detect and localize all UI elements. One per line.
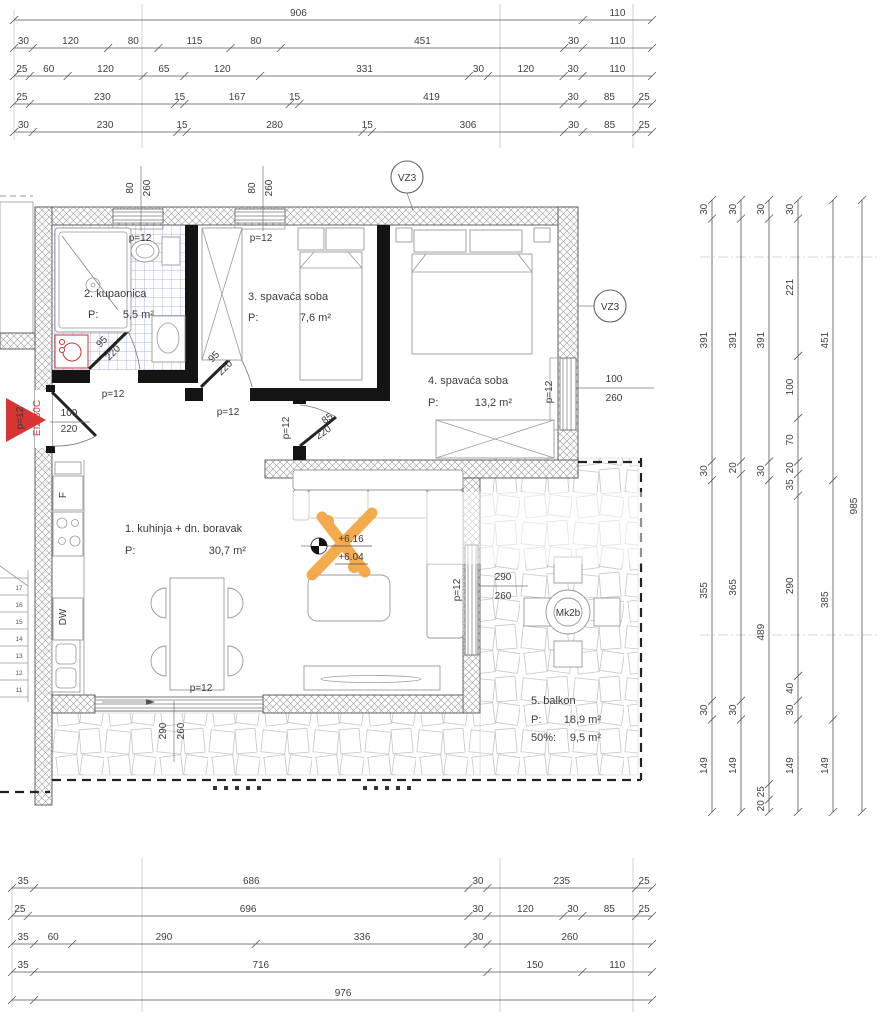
svg-text:30: 30 (18, 36, 30, 47)
plan-label: p=12 (129, 233, 152, 244)
kitchen-cabinet (55, 462, 81, 474)
svg-text:696: 696 (240, 904, 257, 915)
svg-text:P:: P: (248, 312, 258, 324)
svg-text:385: 385 (820, 591, 831, 608)
svg-text:65: 65 (158, 64, 170, 75)
railing-posts (213, 786, 411, 790)
svg-text:60: 60 (48, 932, 60, 943)
svg-text:80: 80 (250, 36, 262, 47)
dining-chair (228, 588, 243, 618)
svg-text:35: 35 (18, 960, 30, 971)
svg-text:85: 85 (604, 92, 616, 103)
bedroom4-area: 13,2 m² (475, 397, 513, 409)
wardrobe-bedroom4 (436, 420, 554, 458)
svg-text:331: 331 (356, 64, 373, 75)
balcony-area: 18,9 m² (564, 714, 602, 726)
svg-text:15: 15 (15, 619, 23, 626)
kitchen-label: 1. kuhinja + dn. boravak (125, 523, 243, 535)
svg-text:14: 14 (15, 636, 23, 643)
svg-text:30: 30 (472, 904, 484, 915)
tv-stand (304, 666, 440, 690)
fridge-letter: F (58, 492, 69, 498)
svg-text:391: 391 (728, 331, 739, 348)
stair-step-numbers: 11121314151617 (15, 585, 23, 694)
plan-label: 260 (264, 179, 275, 196)
svg-text:167: 167 (229, 92, 246, 103)
svg-text:149: 149 (785, 757, 796, 774)
sliding-door-living-bottom (95, 697, 263, 711)
svg-text:306: 306 (460, 120, 477, 131)
plan-label: p=12 (452, 578, 463, 601)
svg-text:391: 391 (699, 331, 710, 348)
svg-text:280: 280 (266, 120, 283, 131)
svg-text:35: 35 (18, 876, 30, 887)
svg-text:25: 25 (16, 64, 28, 75)
floor-plan-canvas: 11121314151617 +6.16 +6.04 VZ3 VZ3 Mk2b … (0, 0, 885, 1024)
svg-text:149: 149 (699, 757, 710, 774)
svg-text:30: 30 (699, 704, 710, 716)
svg-text:110: 110 (609, 64, 625, 75)
vz3-marker-right: VZ3 (578, 290, 626, 322)
svg-text:15: 15 (289, 92, 301, 103)
svg-text:985: 985 (849, 497, 860, 514)
svg-text:290: 290 (156, 932, 173, 943)
staircase: 11121314151617 (0, 566, 28, 702)
svg-text:906: 906 (290, 8, 307, 19)
bedroom4-label: 4. spavaća soba (428, 375, 509, 387)
dining-chair (151, 588, 166, 618)
svg-text:110: 110 (609, 36, 625, 47)
window-top-2 (235, 209, 285, 229)
neighbour-unit-fragment (0, 196, 35, 349)
washing-machine (55, 335, 88, 368)
svg-text:355: 355 (699, 582, 710, 599)
elevation-lower: +6.04 (338, 552, 364, 563)
plan-label: 85 (320, 411, 336, 427)
svg-text:230: 230 (97, 120, 114, 131)
svg-text:50%:: 50%: (531, 732, 556, 744)
plan-label: p=12 (250, 233, 273, 244)
svg-text:30: 30 (728, 704, 739, 716)
svg-text:25: 25 (639, 92, 651, 103)
svg-text:260: 260 (561, 932, 578, 943)
bedroom4-furniture (396, 228, 554, 458)
svg-text:976: 976 (335, 988, 352, 999)
svg-text:451: 451 (414, 36, 431, 47)
plan-label: 80 (247, 182, 258, 194)
svg-text:30: 30 (18, 120, 30, 131)
svg-text:230: 230 (94, 92, 111, 103)
svg-text:120: 120 (517, 904, 534, 915)
svg-text:P:: P: (428, 397, 438, 409)
kitchen-sink (52, 640, 80, 692)
stove (53, 512, 83, 556)
svg-text:25: 25 (16, 92, 28, 103)
dining-chair (151, 646, 166, 676)
svg-text:115: 115 (187, 36, 203, 47)
svg-text:150: 150 (527, 960, 544, 971)
bathroom-label: 2. kupaonica (84, 288, 147, 300)
plan-label: 260 (176, 722, 187, 739)
plan-label: 260 (606, 393, 623, 404)
double-bed (396, 228, 550, 354)
plan-label: EI2 30C (32, 400, 43, 436)
svg-text:30: 30 (568, 120, 580, 131)
svg-text:12: 12 (15, 670, 23, 677)
dining-table (151, 578, 243, 690)
svg-text:20: 20 (728, 462, 739, 474)
dining-chair (228, 646, 243, 676)
bedroom3-furniture (202, 228, 364, 380)
svg-text:120: 120 (62, 36, 79, 47)
svg-text:30: 30 (699, 203, 710, 215)
svg-text:716: 716 (252, 960, 269, 971)
bedroom3-label: 3. spavaća soba (248, 291, 329, 303)
plan-label: p=12 (102, 389, 125, 400)
svg-text:85: 85 (604, 904, 616, 915)
svg-text:25: 25 (639, 120, 651, 131)
svg-text:149: 149 (820, 757, 831, 774)
plan-label: p=12 (15, 406, 26, 429)
plan-label: 260 (142, 179, 153, 196)
plan-label: 220 (314, 423, 334, 442)
svg-text:25: 25 (756, 786, 767, 798)
plan-label: p=12 (544, 380, 555, 403)
single-bed (298, 228, 364, 380)
svg-text:16: 16 (15, 602, 23, 609)
plan-label: 220 (61, 424, 78, 435)
svg-text:11: 11 (16, 687, 23, 694)
svg-text:290: 290 (785, 577, 796, 594)
svg-text:20: 20 (785, 462, 796, 474)
svg-text:100: 100 (785, 378, 796, 395)
svg-text:80: 80 (128, 36, 140, 47)
svg-text:120: 120 (97, 64, 114, 75)
plan-label: 290 (495, 572, 512, 583)
plan-label: p=12 (217, 407, 240, 418)
svg-text:VZ3: VZ3 (398, 173, 417, 184)
svg-text:35: 35 (785, 479, 796, 491)
svg-text:P:: P: (531, 714, 541, 726)
svg-text:30: 30 (756, 203, 767, 215)
svg-text:30: 30 (568, 92, 580, 103)
svg-text:451: 451 (820, 331, 831, 348)
svg-text:15: 15 (174, 92, 186, 103)
kitchen-area: 30,7 m² (209, 545, 247, 557)
elevation-upper: +6.16 (338, 534, 364, 545)
balcony-half-area: 9,5 m² (570, 732, 602, 744)
svg-text:VZ3: VZ3 (601, 302, 620, 313)
plan-label: 100 (61, 408, 78, 419)
svg-text:336: 336 (354, 932, 371, 943)
svg-text:25: 25 (639, 904, 651, 915)
svg-text:60: 60 (43, 64, 55, 75)
svg-text:30: 30 (473, 64, 485, 75)
vz3-marker-top: VZ3 (391, 161, 423, 210)
svg-text:120: 120 (214, 64, 231, 75)
floor-plan-drawing: 11121314151617 +6.16 +6.04 VZ3 VZ3 Mk2b … (0, 0, 885, 1024)
svg-text:365: 365 (728, 579, 739, 596)
plan-label: 260 (495, 591, 512, 602)
svg-text:149: 149 (728, 757, 739, 774)
bathroom-area: 5,5 m² (123, 309, 155, 321)
svg-text:30: 30 (756, 465, 767, 477)
dishwasher-letter: DW (58, 608, 69, 625)
svg-text:30: 30 (472, 932, 484, 943)
svg-text:30: 30 (567, 904, 579, 915)
svg-text:30: 30 (785, 203, 796, 215)
svg-text:30: 30 (568, 64, 580, 75)
svg-text:15: 15 (362, 120, 374, 131)
svg-text:419: 419 (423, 92, 440, 103)
plan-label: 100 (606, 374, 623, 385)
svg-text:P:: P: (88, 309, 98, 321)
plan-label: 290 (158, 722, 169, 739)
svg-text:85: 85 (604, 120, 616, 131)
svg-text:40: 40 (785, 682, 796, 694)
svg-text:235: 235 (553, 876, 570, 887)
svg-text:30: 30 (568, 36, 580, 47)
svg-text:25: 25 (14, 904, 26, 915)
svg-text:35: 35 (18, 932, 30, 943)
plan-label: 220 (215, 358, 235, 378)
sink (152, 316, 185, 362)
wardrobe-bedroom3 (202, 228, 242, 360)
svg-text:120: 120 (517, 64, 534, 75)
svg-text:110: 110 (609, 8, 625, 19)
svg-text:489: 489 (756, 623, 767, 640)
balcony-table-mark: Mk2b (556, 608, 581, 619)
svg-text:110: 110 (609, 960, 625, 971)
svg-text:17: 17 (15, 585, 23, 592)
svg-text:30: 30 (728, 203, 739, 215)
svg-text:25: 25 (639, 876, 651, 887)
svg-text:391: 391 (756, 331, 767, 348)
svg-text:13: 13 (15, 653, 23, 660)
svg-text:20: 20 (756, 800, 767, 812)
svg-text:686: 686 (243, 876, 260, 887)
plan-label: 80 (125, 182, 136, 194)
svg-text:30: 30 (472, 876, 484, 887)
svg-text:70: 70 (785, 434, 796, 446)
svg-text:30: 30 (785, 704, 796, 716)
bedroom4-door (293, 398, 336, 452)
svg-text:15: 15 (176, 120, 188, 131)
plan-label: p=12 (190, 683, 213, 694)
plan-label: p=12 (281, 416, 292, 439)
bedroom3-area: 7,6 m² (300, 312, 332, 324)
svg-text:P:: P: (125, 545, 135, 557)
svg-text:30: 30 (699, 465, 710, 477)
coffee-table (308, 575, 390, 621)
balcony-label: 5. balkon (531, 695, 576, 707)
svg-text:221: 221 (785, 279, 796, 296)
